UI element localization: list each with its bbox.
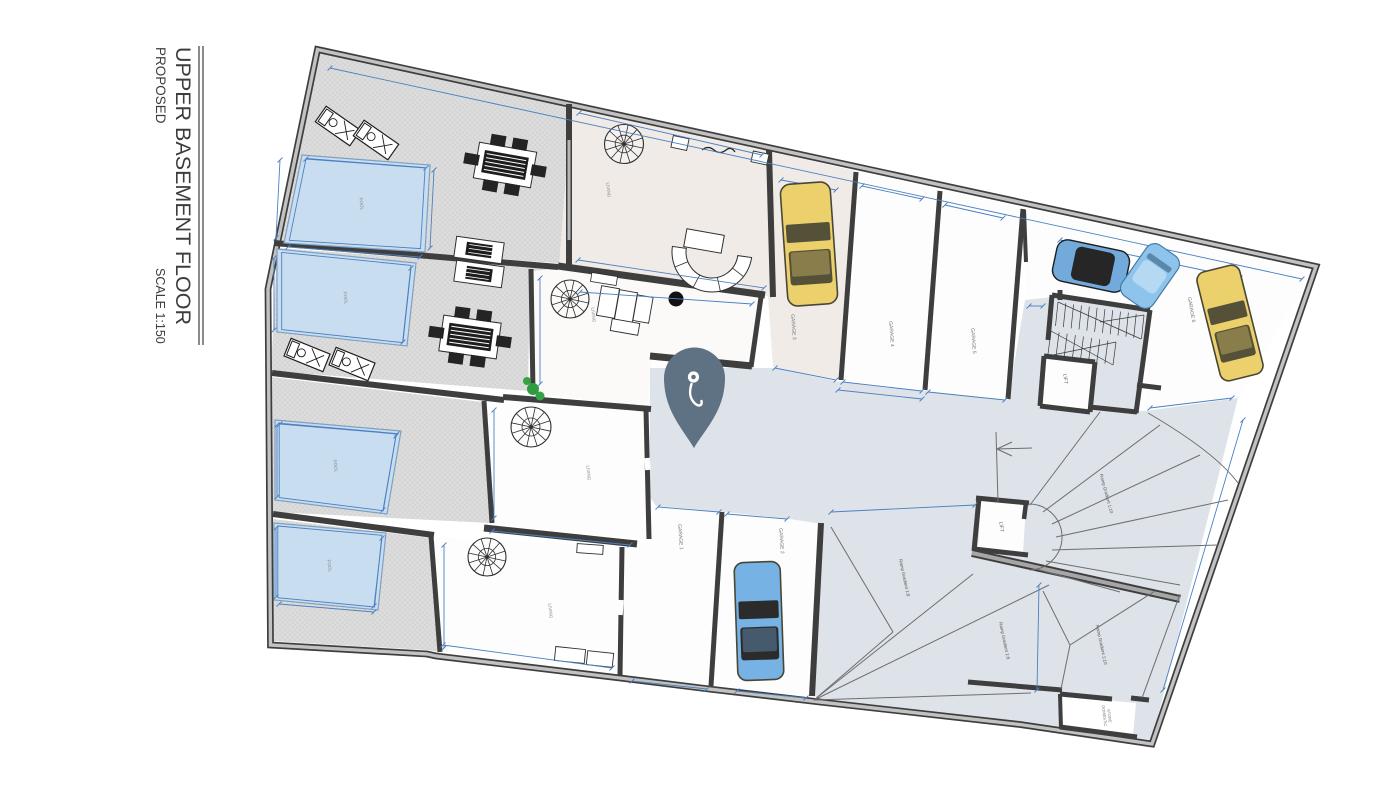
svg-text:SCALE 1:150: SCALE 1:150 bbox=[153, 268, 167, 344]
svg-text:PROPOSED: PROPOSED bbox=[153, 47, 168, 124]
svg-text:UPPER BASEMENT FLOOR: UPPER BASEMENT FLOOR bbox=[171, 47, 195, 325]
svg-text:LIFT: LIFT bbox=[1061, 373, 1068, 384]
svg-text:LIFT: LIFT bbox=[997, 521, 1004, 532]
